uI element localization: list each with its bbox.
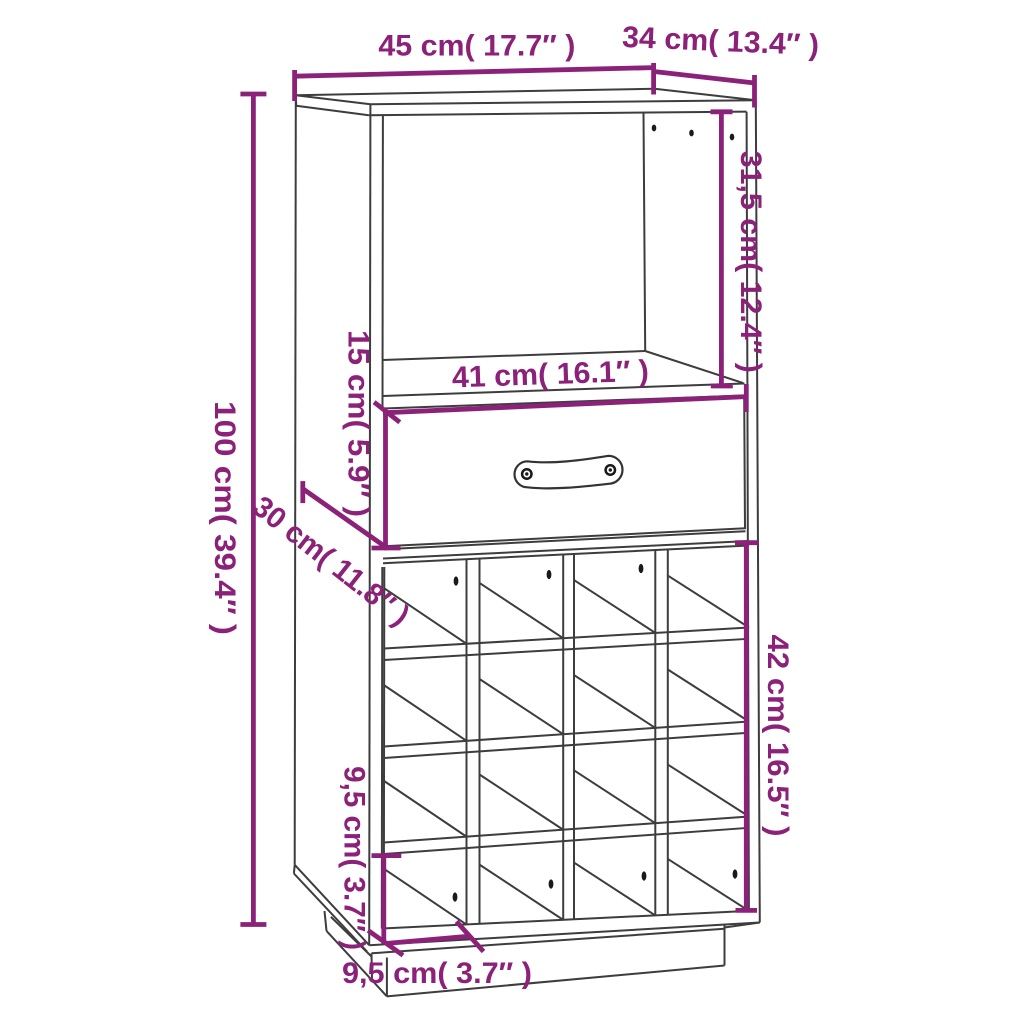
svg-text:41 cm( 16.1″ ): 41 cm( 16.1″ ) [451,355,649,395]
svg-text:34 cm( 13.4″ ): 34 cm( 13.4″ ) [622,21,820,62]
svg-text:45 cm( 17.7″ ): 45 cm( 17.7″ ) [378,30,575,63]
svg-text:15 cm( 5.9″ ): 15 cm( 5.9″ ) [342,330,375,517]
svg-text:9,5 cm( 3.7″ ): 9,5 cm( 3.7″ ) [338,766,371,950]
svg-text:31,5 cm( 12.4″ ): 31,5 cm( 12.4″ ) [734,151,767,373]
svg-text:100 cm( 39.4″ ): 100 cm( 39.4″ ) [208,401,241,635]
svg-text:42 cm( 16.5″ ): 42 cm( 16.5″ ) [761,635,794,837]
svg-text:9,5 cm( 3.7″ ): 9,5 cm( 3.7″ ) [342,957,532,990]
